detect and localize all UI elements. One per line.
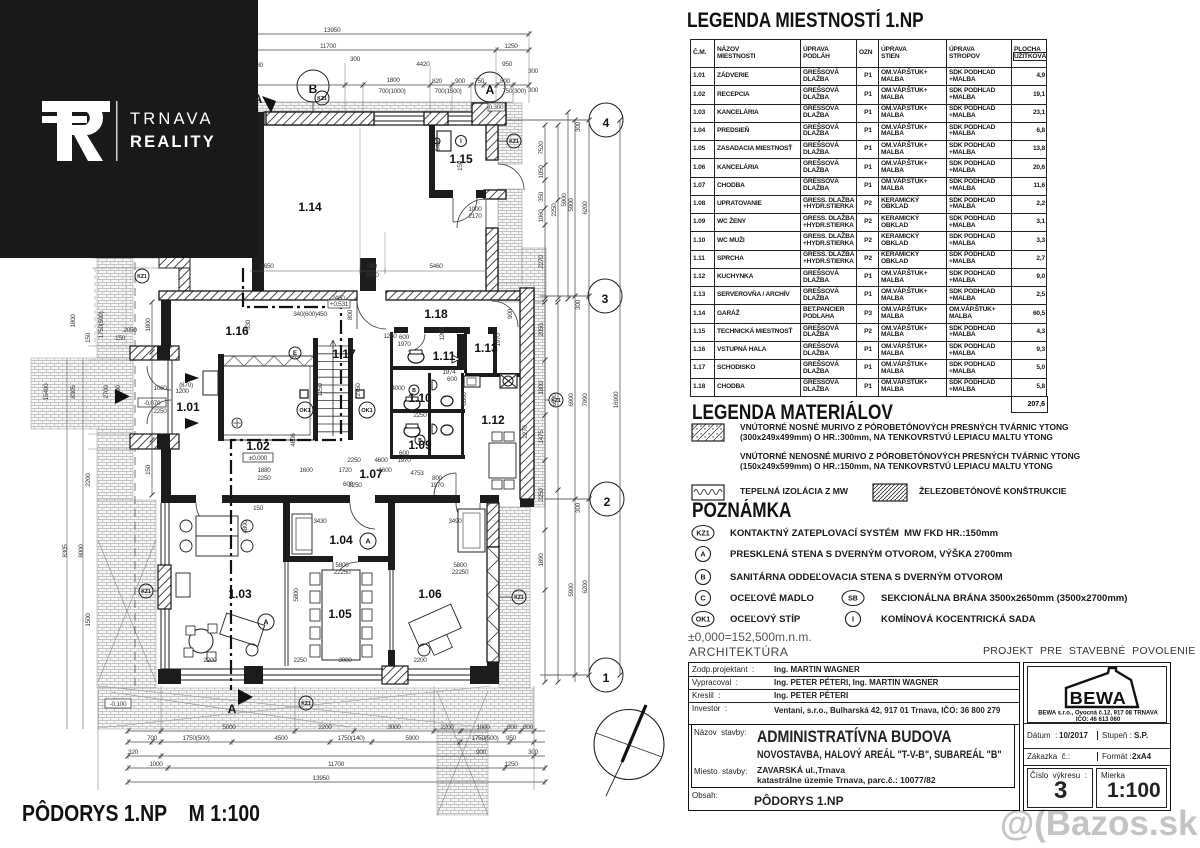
svg-text:I: I	[852, 617, 854, 624]
svg-text:5900: 5900	[568, 583, 575, 597]
svg-text:1250: 1250	[504, 761, 518, 768]
svg-text:OK1: OK1	[361, 408, 372, 414]
svg-text:1: 1	[603, 671, 610, 685]
svg-text:8305: 8305	[62, 544, 69, 558]
svg-text:4753: 4753	[410, 470, 424, 477]
svg-text:630: 630	[245, 319, 252, 330]
svg-text:1.05: 1.05	[328, 607, 352, 621]
svg-text:2050: 2050	[538, 323, 545, 337]
svg-text:350: 350	[538, 191, 545, 202]
svg-text:1600: 1600	[299, 467, 313, 474]
svg-text:KZ1: KZ1	[141, 589, 151, 595]
svg-text:3000: 3000	[387, 724, 401, 731]
svg-text:2200: 2200	[85, 473, 92, 487]
svg-text:8000: 8000	[461, 392, 468, 406]
svg-text:OK1: OK1	[696, 617, 711, 624]
svg-text:1800: 1800	[538, 381, 545, 395]
svg-text:950: 950	[506, 735, 517, 742]
svg-text:A: A	[700, 552, 705, 559]
svg-text:6990: 6990	[551, 393, 558, 407]
svg-text:I: I	[460, 139, 462, 145]
svg-text:700(1500): 700(1500)	[435, 88, 462, 95]
svg-text:2200: 2200	[413, 657, 427, 664]
svg-text:KZ1: KZ1	[317, 96, 327, 102]
svg-text:300: 300	[350, 56, 361, 63]
svg-text:3: 3	[602, 292, 609, 306]
svg-text:-0,100: -0,100	[110, 701, 127, 708]
svg-text:300: 300	[575, 299, 582, 310]
svg-text:320: 320	[128, 749, 139, 756]
svg-text:OCEĽOVÉ MADLO: OCEĽOVÉ MADLO	[730, 593, 814, 604]
svg-text:950: 950	[502, 61, 513, 68]
svg-text:800: 800	[507, 724, 518, 731]
svg-text:2050: 2050	[123, 327, 137, 334]
svg-text:1.14: 1.14	[298, 200, 322, 214]
svg-text:1750(500): 1750(500)	[472, 735, 499, 742]
svg-text:SB: SB	[848, 596, 858, 603]
svg-text:600: 600	[343, 481, 354, 488]
svg-text:700: 700	[147, 735, 158, 742]
svg-text:2250: 2250	[257, 475, 271, 482]
svg-text:300: 300	[528, 749, 539, 756]
svg-text:150: 150	[85, 332, 92, 343]
svg-text:800: 800	[500, 78, 511, 85]
svg-text:2: 2	[604, 495, 611, 509]
svg-text:6650: 6650	[260, 263, 274, 270]
svg-text:13950: 13950	[313, 775, 330, 782]
svg-text:900: 900	[507, 308, 514, 319]
svg-text:5000: 5000	[222, 724, 236, 731]
svg-text:5900: 5900	[568, 198, 575, 212]
svg-text:150: 150	[145, 464, 152, 475]
svg-text:5900: 5900	[405, 735, 419, 742]
svg-text:1750(500): 1750(500)	[183, 735, 210, 742]
svg-text:300: 300	[528, 87, 539, 94]
svg-text:2750: 2750	[355, 383, 362, 397]
svg-text:1800: 1800	[386, 77, 400, 84]
svg-text:1200: 1200	[175, 388, 189, 395]
svg-text:PRESKLENÁ STENA S DVERNÝM OTVO: PRESKLENÁ STENA S DVERNÝM OTVOROM, VÝŠKA…	[730, 548, 1012, 560]
svg-text:2250: 2250	[153, 408, 167, 415]
svg-text:A: A	[263, 620, 268, 627]
svg-text:6900: 6900	[568, 393, 575, 407]
svg-text:IČO: 46 613 060: IČO: 46 613 060	[1076, 716, 1121, 722]
svg-text:1000: 1000	[476, 724, 490, 731]
svg-text:C: C	[700, 596, 705, 603]
svg-text:1800: 1800	[70, 314, 77, 328]
svg-text:A: A	[365, 539, 370, 546]
svg-text:TRNAVA: TRNAVA	[130, 110, 214, 128]
svg-text:1250: 1250	[504, 43, 518, 50]
svg-text:1000: 1000	[149, 761, 163, 768]
svg-text:BEWA s.r.o., Ovocná č.12, 917: BEWA s.r.o., Ovocná č.12, 917 08 TRNAVA	[1038, 711, 1158, 717]
svg-text:1970: 1970	[430, 482, 444, 489]
svg-text:8000: 8000	[78, 544, 85, 558]
svg-text:SANITÁRNA ODDEĽOVACIA STENA S: SANITÁRNA ODDEĽOVACIA STENA S DVERNÝM OT…	[730, 571, 1003, 583]
svg-text:1750(140): 1750(140)	[338, 735, 365, 742]
svg-text:1.06: 1.06	[418, 587, 442, 601]
svg-text:5800: 5800	[293, 588, 300, 602]
svg-text:4420: 4420	[416, 61, 430, 68]
svg-text:900: 900	[476, 749, 487, 756]
svg-text:4806: 4806	[290, 433, 297, 447]
svg-text:1.18: 1.18	[424, 307, 448, 321]
svg-text:7520: 7520	[538, 141, 545, 155]
svg-text:1974: 1974	[442, 369, 456, 376]
svg-text:5800: 5800	[453, 562, 467, 569]
svg-text:150: 150	[457, 160, 464, 171]
svg-text:1060: 1060	[538, 209, 545, 223]
svg-text:KZ1: KZ1	[696, 531, 709, 538]
svg-text:6200: 6200	[582, 201, 589, 215]
svg-text:1475: 1475	[538, 430, 545, 444]
svg-text:1060: 1060	[153, 385, 167, 392]
svg-text:2200: 2200	[440, 724, 454, 731]
svg-text:4800: 4800	[242, 520, 249, 534]
svg-text:1800: 1800	[145, 318, 152, 332]
svg-text:1600: 1600	[378, 467, 392, 474]
svg-text:820: 820	[432, 78, 443, 85]
svg-text:0.300: 0.300	[489, 104, 504, 111]
svg-text:2250: 2250	[293, 657, 307, 664]
svg-text:300: 300	[575, 502, 582, 513]
svg-text:750: 750	[474, 78, 485, 85]
svg-text:4500: 4500	[274, 735, 288, 742]
svg-text:2400: 2400	[435, 138, 442, 152]
svg-text:4: 4	[603, 116, 610, 130]
svg-text:340(600)450: 340(600)450	[293, 311, 327, 318]
svg-text:1.12: 1.12	[481, 413, 505, 427]
svg-text:±0.000: ±0.000	[249, 455, 268, 462]
svg-text:1.11: 1.11	[433, 349, 456, 363]
svg-text:1250: 1250	[317, 383, 324, 397]
svg-text:B: B	[700, 575, 705, 582]
svg-text:1260: 1260	[383, 333, 397, 340]
svg-text:1500: 1500	[85, 613, 92, 627]
svg-text:OK1: OK1	[299, 408, 310, 414]
svg-text:KZ1: KZ1	[514, 595, 524, 601]
svg-text:6200: 6200	[582, 580, 589, 594]
svg-text:KZ1: KZ1	[301, 701, 311, 707]
svg-text:2200: 2200	[203, 657, 217, 664]
svg-text:OCEĽOVÝ STÍP: OCEĽOVÝ STÍP	[730, 613, 801, 625]
svg-text:800: 800	[347, 309, 354, 320]
svg-text:700(1000): 700(1000)	[379, 88, 406, 95]
svg-text:2250: 2250	[538, 488, 545, 502]
svg-text:3000: 3000	[338, 657, 352, 664]
svg-text:750(300): 750(300)	[502, 88, 526, 95]
svg-text:2200: 2200	[318, 724, 332, 731]
svg-text:1.17: 1.17	[332, 347, 356, 361]
svg-text:KZ1: KZ1	[137, 274, 147, 280]
svg-text:7990: 7990	[582, 393, 589, 407]
svg-text:1970: 1970	[397, 457, 411, 464]
svg-text:2270: 2270	[538, 255, 545, 269]
svg-text:300: 300	[528, 68, 539, 75]
svg-text:2050: 2050	[365, 272, 379, 279]
svg-text:800: 800	[523, 724, 534, 731]
svg-text:KONTAKTNÝ ZATEPLOVACÍ SYSTÉM: KONTAKTNÝ ZATEPLOVACÍ SYSTÉM MW FKD HR.:…	[730, 527, 998, 539]
svg-text:BEWA: BEWA	[1070, 688, 1127, 708]
svg-text:E: E	[293, 351, 297, 357]
svg-text:16900: 16900	[613, 391, 620, 408]
svg-text:B: B	[418, 438, 422, 444]
svg-text:1970: 1970	[495, 333, 502, 347]
svg-text:8305: 8305	[70, 385, 77, 399]
svg-text:300: 300	[575, 121, 582, 132]
svg-text:2270: 2270	[522, 425, 529, 439]
svg-text:KOMÍNOVÁ KOCENTRICKÁ SADA: KOMÍNOVÁ KOCENTRICKÁ SADA	[881, 614, 1036, 625]
svg-text:900: 900	[455, 78, 466, 85]
svg-text:5900: 5900	[561, 193, 568, 207]
svg-text:1.04: 1.04	[329, 533, 353, 547]
svg-text:1050: 1050	[538, 165, 545, 179]
svg-text:REALITY: REALITY	[130, 133, 216, 151]
svg-text:13950: 13950	[324, 27, 341, 34]
svg-text:2250: 2250	[413, 412, 427, 419]
svg-text:1000: 1000	[468, 206, 482, 213]
svg-text:2250: 2250	[551, 203, 558, 217]
svg-text:22250: 22250	[334, 569, 351, 576]
svg-text:3430: 3430	[313, 518, 327, 525]
svg-text:11700: 11700	[328, 761, 345, 768]
svg-text:4000: 4000	[391, 385, 405, 392]
svg-text:5460: 5460	[429, 263, 443, 270]
svg-text:22250: 22250	[452, 569, 469, 576]
svg-text:2250: 2250	[347, 457, 361, 464]
svg-text:11700: 11700	[320, 43, 337, 50]
svg-text:5800: 5800	[335, 562, 349, 569]
svg-text:2170: 2170	[468, 213, 482, 220]
svg-text:1750(500): 1750(500)	[98, 311, 105, 338]
svg-text:PÔDORYS 1.NP M 1:100: PÔDORYS 1.NP M 1:100	[22, 799, 260, 826]
svg-text:1.01: 1.01	[176, 400, 200, 414]
svg-text:1890: 1890	[538, 553, 545, 567]
svg-text:KZ1: KZ1	[509, 139, 519, 145]
svg-text:600: 600	[399, 450, 410, 457]
svg-text:1720: 1720	[338, 467, 352, 474]
svg-text:SEKCIONÁLNA BRÁNA 3500x2650mm: SEKCIONÁLNA BRÁNA 3500x2650mm (3500x2700…	[881, 593, 1127, 604]
svg-text:800: 800	[432, 475, 443, 482]
svg-text:150: 150	[253, 505, 264, 512]
svg-text:3490: 3490	[448, 518, 462, 525]
svg-text:15400: 15400	[43, 383, 50, 400]
svg-text:600: 600	[447, 376, 458, 383]
svg-text:4600: 4600	[374, 457, 388, 464]
svg-text:1970: 1970	[397, 341, 411, 348]
svg-text:+0.531: +0.531	[330, 301, 349, 308]
svg-text:B: B	[412, 388, 416, 394]
svg-text:2700: 2700	[103, 385, 110, 399]
svg-text:A: A	[228, 702, 237, 716]
svg-text:(870): (870)	[179, 382, 193, 389]
svg-text:980: 980	[367, 263, 378, 270]
svg-text:1880: 1880	[257, 467, 271, 474]
svg-text:600: 600	[399, 334, 410, 341]
svg-text:1200: 1200	[439, 327, 446, 341]
svg-text:150: 150	[115, 335, 126, 342]
